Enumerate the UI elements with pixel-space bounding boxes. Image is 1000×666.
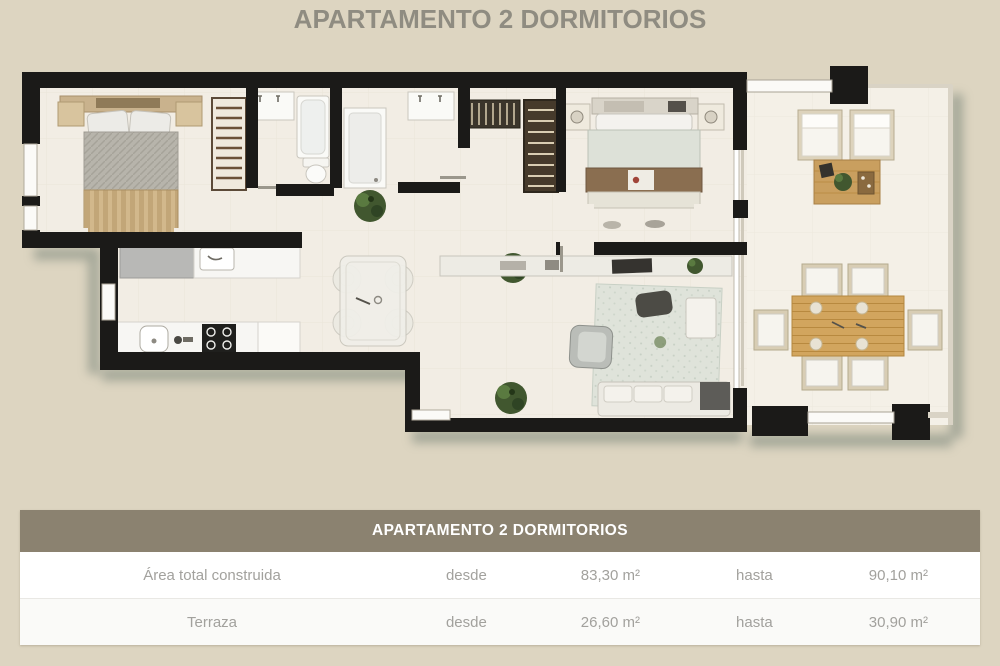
range-from-value: 26,60 m² <box>529 614 692 631</box>
sliding-glass-door <box>734 146 744 390</box>
plant <box>495 382 527 414</box>
terrace-coffee-table <box>814 160 880 204</box>
row-label: Terraza <box>20 614 404 631</box>
bedroom2-wardrobe <box>524 100 558 192</box>
spec-table: APARTAMENTO 2 DORMITORIOS Área total con… <box>20 510 980 645</box>
range-to-word: hasta <box>692 614 817 631</box>
range-from-value: 83,30 m² <box>529 567 692 584</box>
table-row: Terraza desde 26,60 m² hasta 30,90 m² <box>20 598 980 645</box>
tv-sideboard <box>440 256 732 276</box>
pouf <box>635 290 674 319</box>
table-row: Área total construida desde 83,30 m² has… <box>20 552 980 598</box>
range-from-word: desde <box>404 614 529 631</box>
page: APARTAMENTO 2 DORMITORIOS <box>0 0 1000 666</box>
table-body: Área total construida desde 83,30 m² has… <box>20 552 980 645</box>
range-to-word: hasta <box>692 567 817 584</box>
coffee-table-living <box>686 298 716 338</box>
range-from-word: desde <box>404 567 529 584</box>
lounge-chair <box>850 110 894 160</box>
master-wardrobe <box>212 98 246 190</box>
entry-door <box>412 410 450 420</box>
table-header: APARTAMENTO 2 DORMITORIOS <box>20 510 980 552</box>
row-label: Área total construida <box>20 567 404 584</box>
kitchen-dining-set <box>333 256 413 346</box>
hall-closet <box>466 100 520 128</box>
range-to-value: 90,10 m² <box>817 567 980 584</box>
plant <box>354 190 386 222</box>
sofa <box>598 382 730 416</box>
armchair <box>569 325 613 369</box>
range-to-value: 30,90 m² <box>817 614 980 631</box>
floor-plan <box>0 0 1000 512</box>
lounge-chair <box>798 110 842 160</box>
